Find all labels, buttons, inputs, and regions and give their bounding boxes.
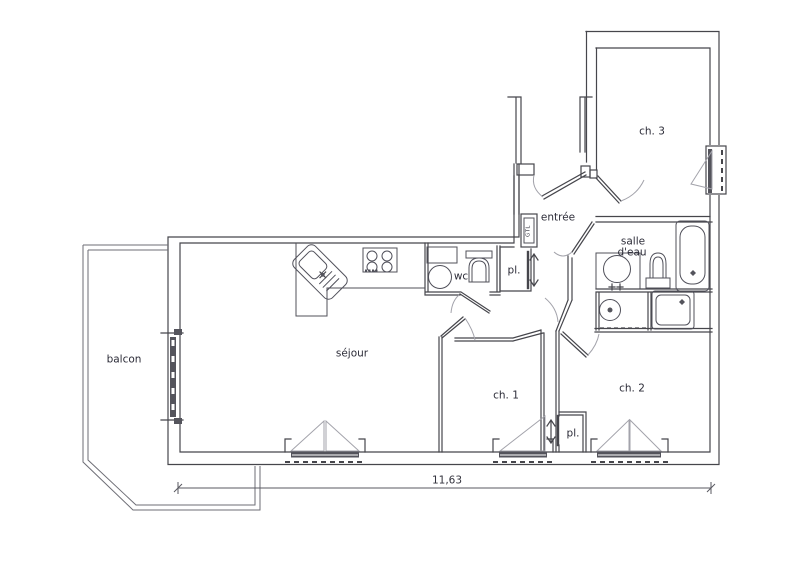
stove-icon (363, 248, 397, 272)
bedroom2-window (591, 420, 668, 462)
room-label-wc: wc (454, 272, 468, 283)
bathroom-walls (556, 253, 712, 331)
bathroom-toilet-icon (646, 253, 670, 288)
wc-toilet-icon (466, 251, 492, 282)
living-room-window (285, 421, 365, 462)
room-label-salle-eau-line2: d'eau (617, 248, 646, 259)
room-label-entree: entrée (541, 213, 575, 224)
water-heater-icon (427, 247, 457, 289)
closet-label-ch2: pl. (567, 429, 580, 440)
bedroom2-door (545, 298, 599, 357)
bedroom3-door (596, 176, 644, 203)
bedroom1-door (441, 317, 475, 340)
gtl-label: GTL (524, 225, 535, 237)
washbasin-icon (604, 256, 631, 291)
kitchen-sink-icon (290, 242, 349, 301)
bathroom-door (554, 222, 594, 256)
kitchen-counter (296, 243, 425, 316)
floor-plan-drawing (0, 0, 800, 566)
room-label-ch3: ch. 3 (639, 127, 665, 138)
room-label-ch1: ch. 1 (493, 391, 519, 402)
bathtub-icon (676, 221, 709, 291)
entry-corridor-walls (508, 97, 597, 214)
floor-plan: ch. 3 entrée salle d'eau wc pl. GTL balc… (0, 0, 800, 566)
room-label-balcon: balcon (107, 355, 142, 366)
dimension-value: 11,63 (432, 476, 462, 487)
bedroom3-window (691, 145, 726, 195)
room-label-ch2: ch. 2 (619, 384, 645, 395)
bedroom-closet-sliding-arrow (547, 420, 555, 443)
shower-tray-icon (652, 291, 694, 329)
bedroom1-walls (439, 330, 544, 452)
closet-label-entree: pl. (508, 266, 521, 277)
room-label-sejour: séjour (336, 349, 368, 360)
front-door (533, 172, 586, 199)
washing-machine-icon (600, 300, 621, 321)
